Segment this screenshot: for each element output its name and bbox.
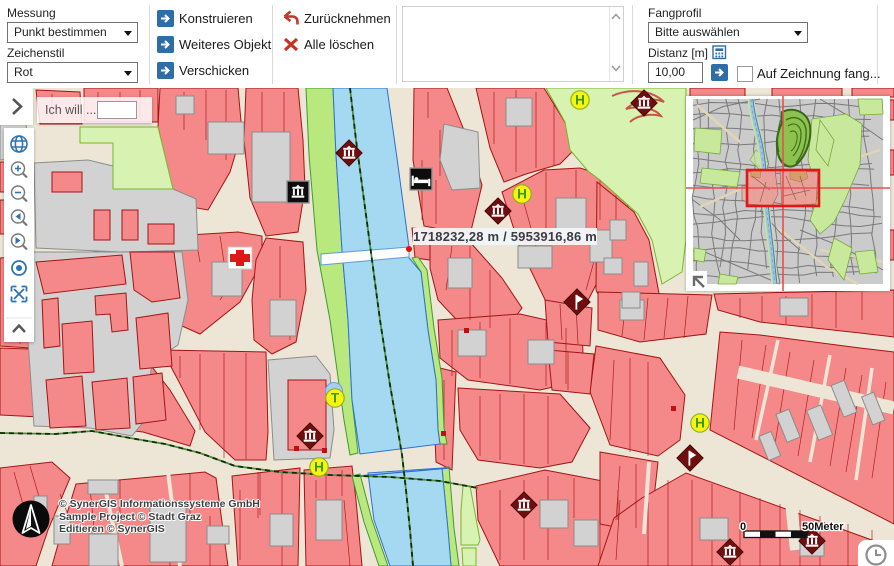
svg-text:0: 0 xyxy=(740,521,746,533)
svg-text:50Meter: 50Meter xyxy=(802,521,844,533)
